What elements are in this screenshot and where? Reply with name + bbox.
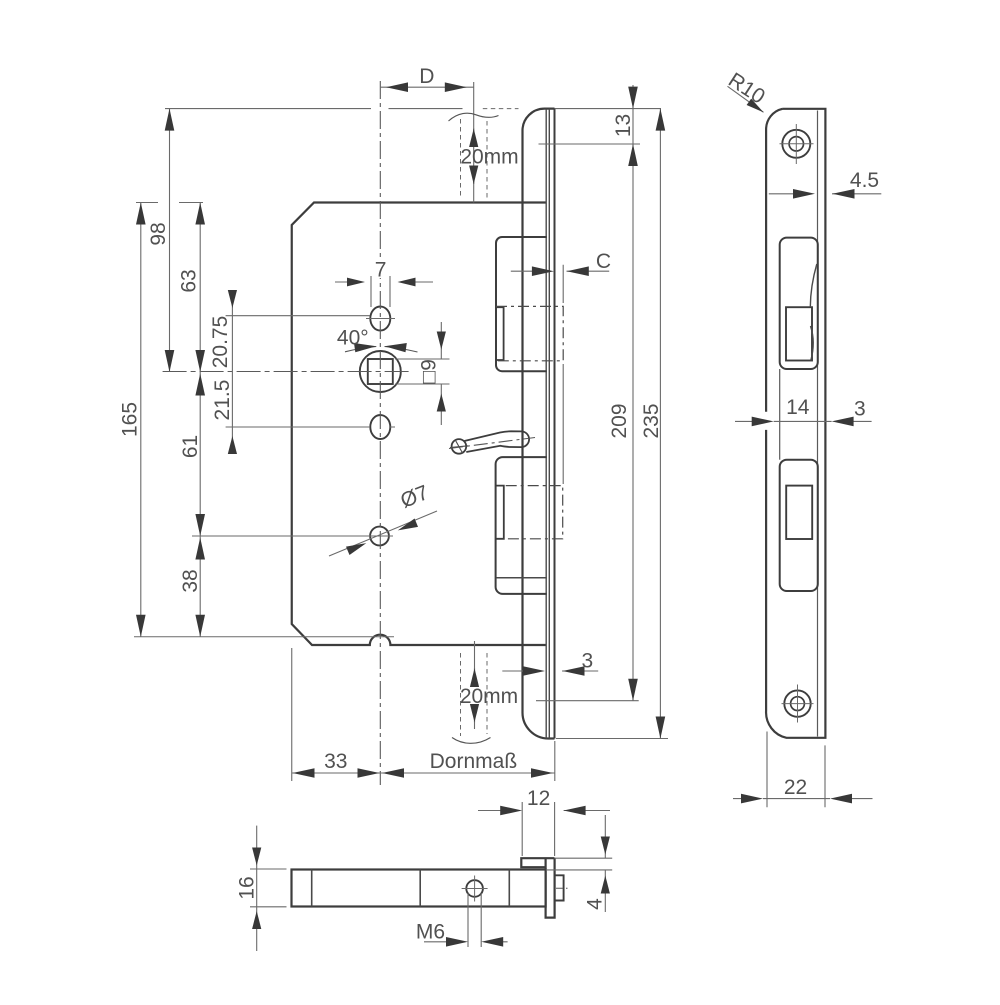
svg-text:40°: 40° (337, 327, 369, 350)
svg-text:7: 7 (375, 259, 387, 282)
svg-text:14: 14 (786, 396, 810, 419)
svg-text:Dornmaß: Dornmaß (430, 750, 518, 773)
svg-text:38: 38 (179, 569, 202, 592)
svg-text:20.75: 20.75 (209, 316, 232, 369)
svg-text:21.5: 21.5 (211, 380, 234, 421)
svg-text:D: D (419, 65, 434, 88)
svg-text:209: 209 (608, 403, 631, 438)
svg-text:4: 4 (584, 898, 607, 910)
svg-text:4.5: 4.5 (850, 169, 879, 192)
svg-text:M6: M6 (416, 921, 445, 944)
svg-text:3: 3 (854, 398, 866, 421)
svg-text:63: 63 (178, 269, 201, 292)
svg-text:C: C (596, 250, 611, 273)
svg-text:13: 13 (612, 114, 635, 137)
svg-text:20mm: 20mm (460, 685, 518, 708)
svg-text:□9: □9 (418, 359, 441, 383)
svg-text:22: 22 (784, 776, 807, 799)
svg-text:20mm: 20mm (460, 146, 518, 169)
svg-text:98: 98 (147, 222, 170, 245)
svg-text:33: 33 (324, 750, 347, 773)
svg-text:235: 235 (640, 403, 663, 438)
svg-text:12: 12 (527, 787, 550, 810)
svg-text:165: 165 (119, 402, 142, 437)
svg-text:16: 16 (236, 876, 259, 899)
svg-text:3: 3 (582, 650, 594, 673)
svg-text:61: 61 (179, 435, 202, 458)
